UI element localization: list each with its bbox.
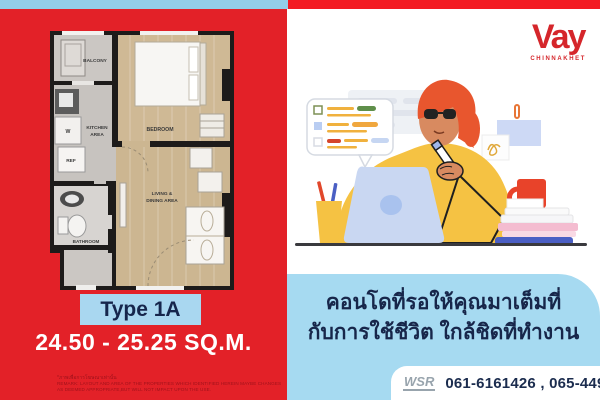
balcony-window — [62, 31, 104, 35]
disclaimer: *ภาพเพื่อการโฆษณาเท่านั้น REMARK: LAYOUT… — [57, 375, 287, 393]
toilet — [68, 215, 86, 237]
plan-notch — [50, 253, 60, 290]
wall — [112, 141, 122, 147]
entry-door-gap — [76, 285, 96, 290]
wall — [50, 81, 72, 85]
chair — [198, 172, 222, 192]
wall — [50, 181, 94, 186]
phone-numbers: 061-6161426 , 065-4496399 — [445, 375, 600, 392]
unit-area-text: 24.50 - 25.25 SQ.M. — [0, 329, 287, 356]
headline-line-2: กับการใช้ชีวิต ใกล้ชิดที่ทำงาน — [287, 318, 600, 348]
toilet-tank — [58, 217, 68, 234]
hand — [437, 162, 463, 180]
balcony-door — [72, 81, 94, 85]
pencil-cup — [316, 181, 342, 243]
glasses-icon — [443, 109, 456, 119]
washer-label: W — [66, 129, 71, 135]
headboard — [200, 43, 206, 105]
kitchen-label-1: KITCHEN — [86, 125, 108, 131]
top-strip-red — [288, 0, 600, 9]
bedroom-door-gap — [122, 141, 150, 147]
bathroom-label: BATHROOM — [73, 239, 100, 244]
checklist-speech-bubble — [307, 99, 393, 167]
kitchen-label-2: AREA — [90, 132, 104, 138]
work-from-home-illustration — [287, 47, 600, 259]
floorplan-panel: BALCONY W KITCHEN AREA REF BEDROOM LIVIN… — [0, 9, 287, 400]
headline-text: คอนโดที่รอให้คุณมาเต็มที่ กับการใช้ชีวิต… — [287, 288, 600, 348]
pillow — [189, 75, 198, 100]
living-label-2: DINING AREA — [146, 198, 178, 204]
wall — [54, 245, 112, 250]
kitchen-sink — [59, 93, 73, 107]
bedroom-label: BEDROOM — [146, 127, 173, 133]
glasses-icon — [424, 109, 438, 119]
disclaimer-english: REMARK: LAYOUT AND AREA OF THE PROPERTIE… — [57, 381, 287, 393]
checkbox-icon — [314, 122, 322, 130]
tv-console — [120, 183, 126, 227]
floorplan-drawing: BALCONY W KITCHEN AREA REF BEDROOM LIVIN… — [50, 31, 234, 290]
headline-line-1: คอนโดที่รอให้คุณมาเต็มที่ — [287, 288, 600, 318]
dresser — [200, 114, 224, 137]
pillow — [189, 47, 198, 72]
scribble-note — [482, 135, 509, 160]
agency-logo: WSR — [403, 375, 435, 391]
wall — [150, 141, 234, 147]
pillar — [222, 69, 234, 101]
desk-line — [295, 243, 587, 246]
laptop-logo — [380, 195, 402, 215]
unit-type-badge: Type 1A — [80, 294, 201, 325]
balcony-label: BALCONY — [83, 58, 108, 64]
wall — [108, 181, 114, 215]
entry-floor — [64, 250, 112, 286]
bedroom-window — [140, 31, 198, 35]
fridge-label: REF — [66, 158, 76, 164]
unit-type-label: Type 1A — [100, 298, 180, 322]
living-window — [136, 286, 184, 290]
condo-ad-poster: BALCONY W KITCHEN AREA REF BEDROOM LIVIN… — [0, 0, 600, 400]
chair — [190, 148, 212, 168]
hair-back — [462, 111, 480, 147]
book-stack — [495, 199, 578, 245]
laptop — [344, 167, 444, 243]
living-label-1: LIVING & — [152, 191, 173, 197]
wall — [112, 31, 118, 145]
contact-bar: WSR 061-6161426 , 065-4496399 — [391, 366, 600, 400]
bath-sink-bowl — [65, 195, 79, 204]
top-strip-blue — [0, 0, 288, 9]
